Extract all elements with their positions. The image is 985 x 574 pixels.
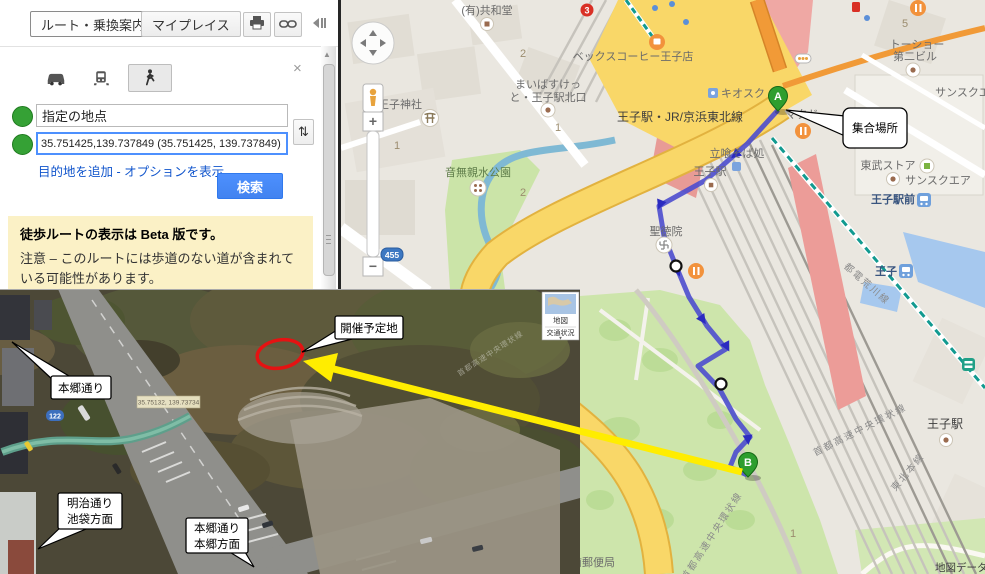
add-destination-link[interactable]: 目的地を追加 [38, 165, 113, 179]
mode-walking-button[interactable] [128, 64, 172, 92]
svg-text:音無親水公園: 音無親水公園 [445, 165, 511, 179]
svg-text:王子: 王子 [875, 265, 897, 278]
origin-badge [12, 106, 33, 127]
svg-text:と・王子駅北口: と・王子駅北口 [510, 91, 587, 104]
route-shield-122: 122 [46, 410, 64, 421]
svg-text:王子駅前: 王子駅前 [871, 192, 915, 206]
origin-input[interactable] [36, 104, 288, 127]
mode-driving-button[interactable] [38, 64, 74, 92]
route-shield-455: 455 [381, 248, 403, 261]
svg-text:キオスク: キオスク [721, 87, 765, 100]
warning-title: 徒歩ルートの表示は Beta 版です。 [20, 225, 301, 245]
svg-text:トーショー: トーショー [890, 39, 945, 51]
print-button[interactable] [243, 12, 271, 37]
svg-text:5: 5 [902, 18, 908, 30]
svg-text:−: − [369, 258, 377, 274]
svg-text:+: + [369, 113, 377, 129]
scrollbar-up-arrow[interactable]: ▲ [323, 50, 331, 59]
panel-header: ルート・乗換案内 マイプレイス [0, 0, 338, 47]
svg-text:王子駅: 王子駅 [694, 165, 727, 178]
walking-person-icon [143, 69, 157, 87]
show-options-link[interactable]: オプションを表示 [124, 165, 224, 179]
svg-text:122: 122 [49, 414, 61, 421]
printer-icon [249, 16, 265, 30]
route-waypoint[interactable] [671, 261, 682, 272]
svg-text:B: B [744, 457, 752, 469]
svg-text:池袋方面: 池袋方面 [67, 512, 113, 526]
transit-icon [93, 70, 109, 87]
car-icon [45, 71, 67, 86]
link-separator: - [113, 165, 124, 179]
route-transit-button[interactable]: ルート・乗換案内 [30, 11, 156, 37]
svg-text:455: 455 [385, 250, 399, 260]
svg-text:1: 1 [555, 122, 561, 134]
collapse-panel-icon[interactable] [311, 14, 327, 32]
zoom-slider-track [367, 131, 379, 257]
maptype-map-label: 地図 [553, 315, 568, 325]
svg-text:A: A [774, 91, 782, 103]
coordinate-tag: 35.75132, 139.73734 [137, 396, 200, 408]
share-link-button[interactable] [274, 12, 302, 37]
svg-text:3: 3 [584, 6, 589, 16]
svg-text:本郷通り: 本郷通り [58, 381, 104, 395]
svg-text:まいばすけっ: まいばすけっ [515, 78, 581, 91]
svg-text:ベックスコーヒー王子店: ベックスコーヒー王子店 [573, 49, 694, 63]
svg-text:(有)共和堂: (有)共和堂 [461, 3, 512, 17]
svg-text:サンスクエア: サンスクエア [935, 86, 985, 99]
chain-link-icon [279, 19, 297, 29]
panel-scrollbar[interactable]: ▲ [321, 46, 336, 289]
google-maps-directions-screen: 3 (有)共和堂 まいばすけっ と・王子駅北口 ベックスコーヒー王子店 王子神社 [0, 0, 985, 574]
search-button[interactable]: 検索 [217, 173, 283, 199]
map-pan-control[interactable] [352, 22, 394, 64]
traffic-caret-icon: ▼ [558, 336, 562, 341]
svg-text:1: 1 [790, 528, 796, 540]
close-icon[interactable]: × [293, 60, 302, 77]
maptype-control: 地図 交通状況 ▼ [542, 292, 579, 341]
svg-text:サンスクエア: サンスクエア [905, 174, 971, 187]
svg-text:本郷方面: 本郷方面 [194, 537, 240, 551]
pegman-control[interactable] [363, 84, 383, 112]
svg-text:王子駅・JR/京浜東北線: 王子駅・JR/京浜東北線 [617, 109, 743, 124]
svg-text:立喰そば処: 立喰そば処 [710, 146, 765, 160]
beta-warning-box: 徒歩ルートの表示は Beta 版です。 注意 – このルートには歩道のない道が含… [8, 216, 313, 296]
route-waypoint[interactable] [716, 379, 727, 390]
svg-text:開催予定地: 開催予定地 [340, 321, 398, 335]
mode-transit-button[interactable] [84, 64, 118, 92]
svg-text:明治通り: 明治通り [67, 496, 113, 510]
my-places-button[interactable]: マイプレイス [141, 11, 241, 37]
svg-text:東武ストア: 東武ストア [861, 159, 916, 172]
svg-text:聖徳院: 聖徳院 [650, 224, 683, 238]
warning-body: 注意 – このルートには歩道のない道が含まれている可能性があります。 [20, 249, 301, 289]
svg-text:2: 2 [520, 48, 526, 60]
svg-text:2: 2 [520, 187, 526, 199]
svg-text:王子神社: 王子神社 [378, 97, 422, 111]
swap-endpoints-button[interactable]: ⇅ [293, 119, 314, 145]
svg-text:第二ビル: 第二ビル [893, 49, 937, 63]
svg-text:1: 1 [394, 140, 400, 152]
map-attribution: 地図データ [935, 561, 985, 574]
train-badge-oji [899, 264, 913, 278]
svg-text:35.75132, 139.73734: 35.75132, 139.73734 [138, 400, 200, 407]
svg-text:集合場所: 集合場所 [852, 121, 898, 135]
scrollbar-thumb[interactable] [323, 64, 335, 276]
svg-text:王子駅: 王子駅 [927, 417, 963, 431]
destination-badge [12, 134, 33, 155]
directions-panel: ルート・乗換案内 マイプレイス × ⇅ 目的地を追加 - オプションを表示 検索… [0, 0, 341, 289]
train-badge-ojiekimae [917, 193, 931, 207]
options-links: 目的地を追加 - オプションを表示 [38, 161, 224, 180]
svg-text:本郷通り: 本郷通り [194, 521, 240, 535]
aerial-photo-overlay: 122 首都高速中央環状線 35.75132, 139.73734 開催予定地 … [0, 289, 580, 574]
destination-input[interactable] [36, 132, 288, 155]
